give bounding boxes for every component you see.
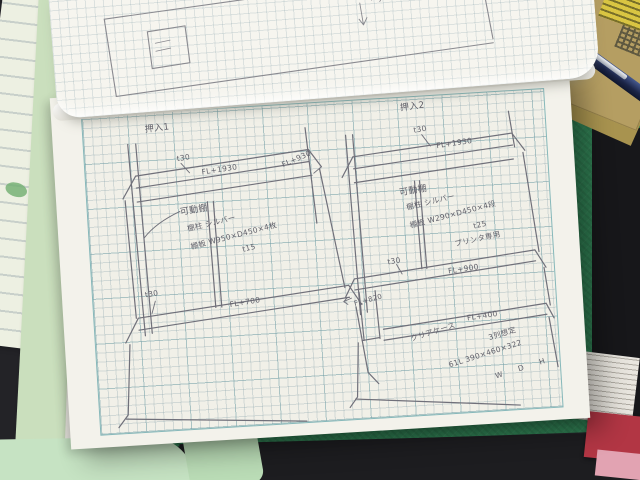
notebook: 押入1 t30 FL+1930 FL+930 可動棚 棚柱 シルバー 棚板 W9… [46,0,602,478]
turtle-sticker [4,180,29,200]
pencil-sketch [82,89,563,435]
label-unit1-title: 押入1 [144,119,170,135]
graph-grid: 押入1 t30 FL+1930 FL+930 可動棚 棚柱 シルバー 棚板 W9… [81,88,564,436]
notebook-page: 押入1 t30 FL+1930 FL+930 可動棚 棚柱 シルバー 棚板 W9… [50,66,591,449]
photo-scene: 押入1 t30 FL+1930 FL+930 可動棚 棚柱 シルバー 棚板 W9… [0,0,640,480]
pencil-sketch-unit1 [101,124,380,432]
